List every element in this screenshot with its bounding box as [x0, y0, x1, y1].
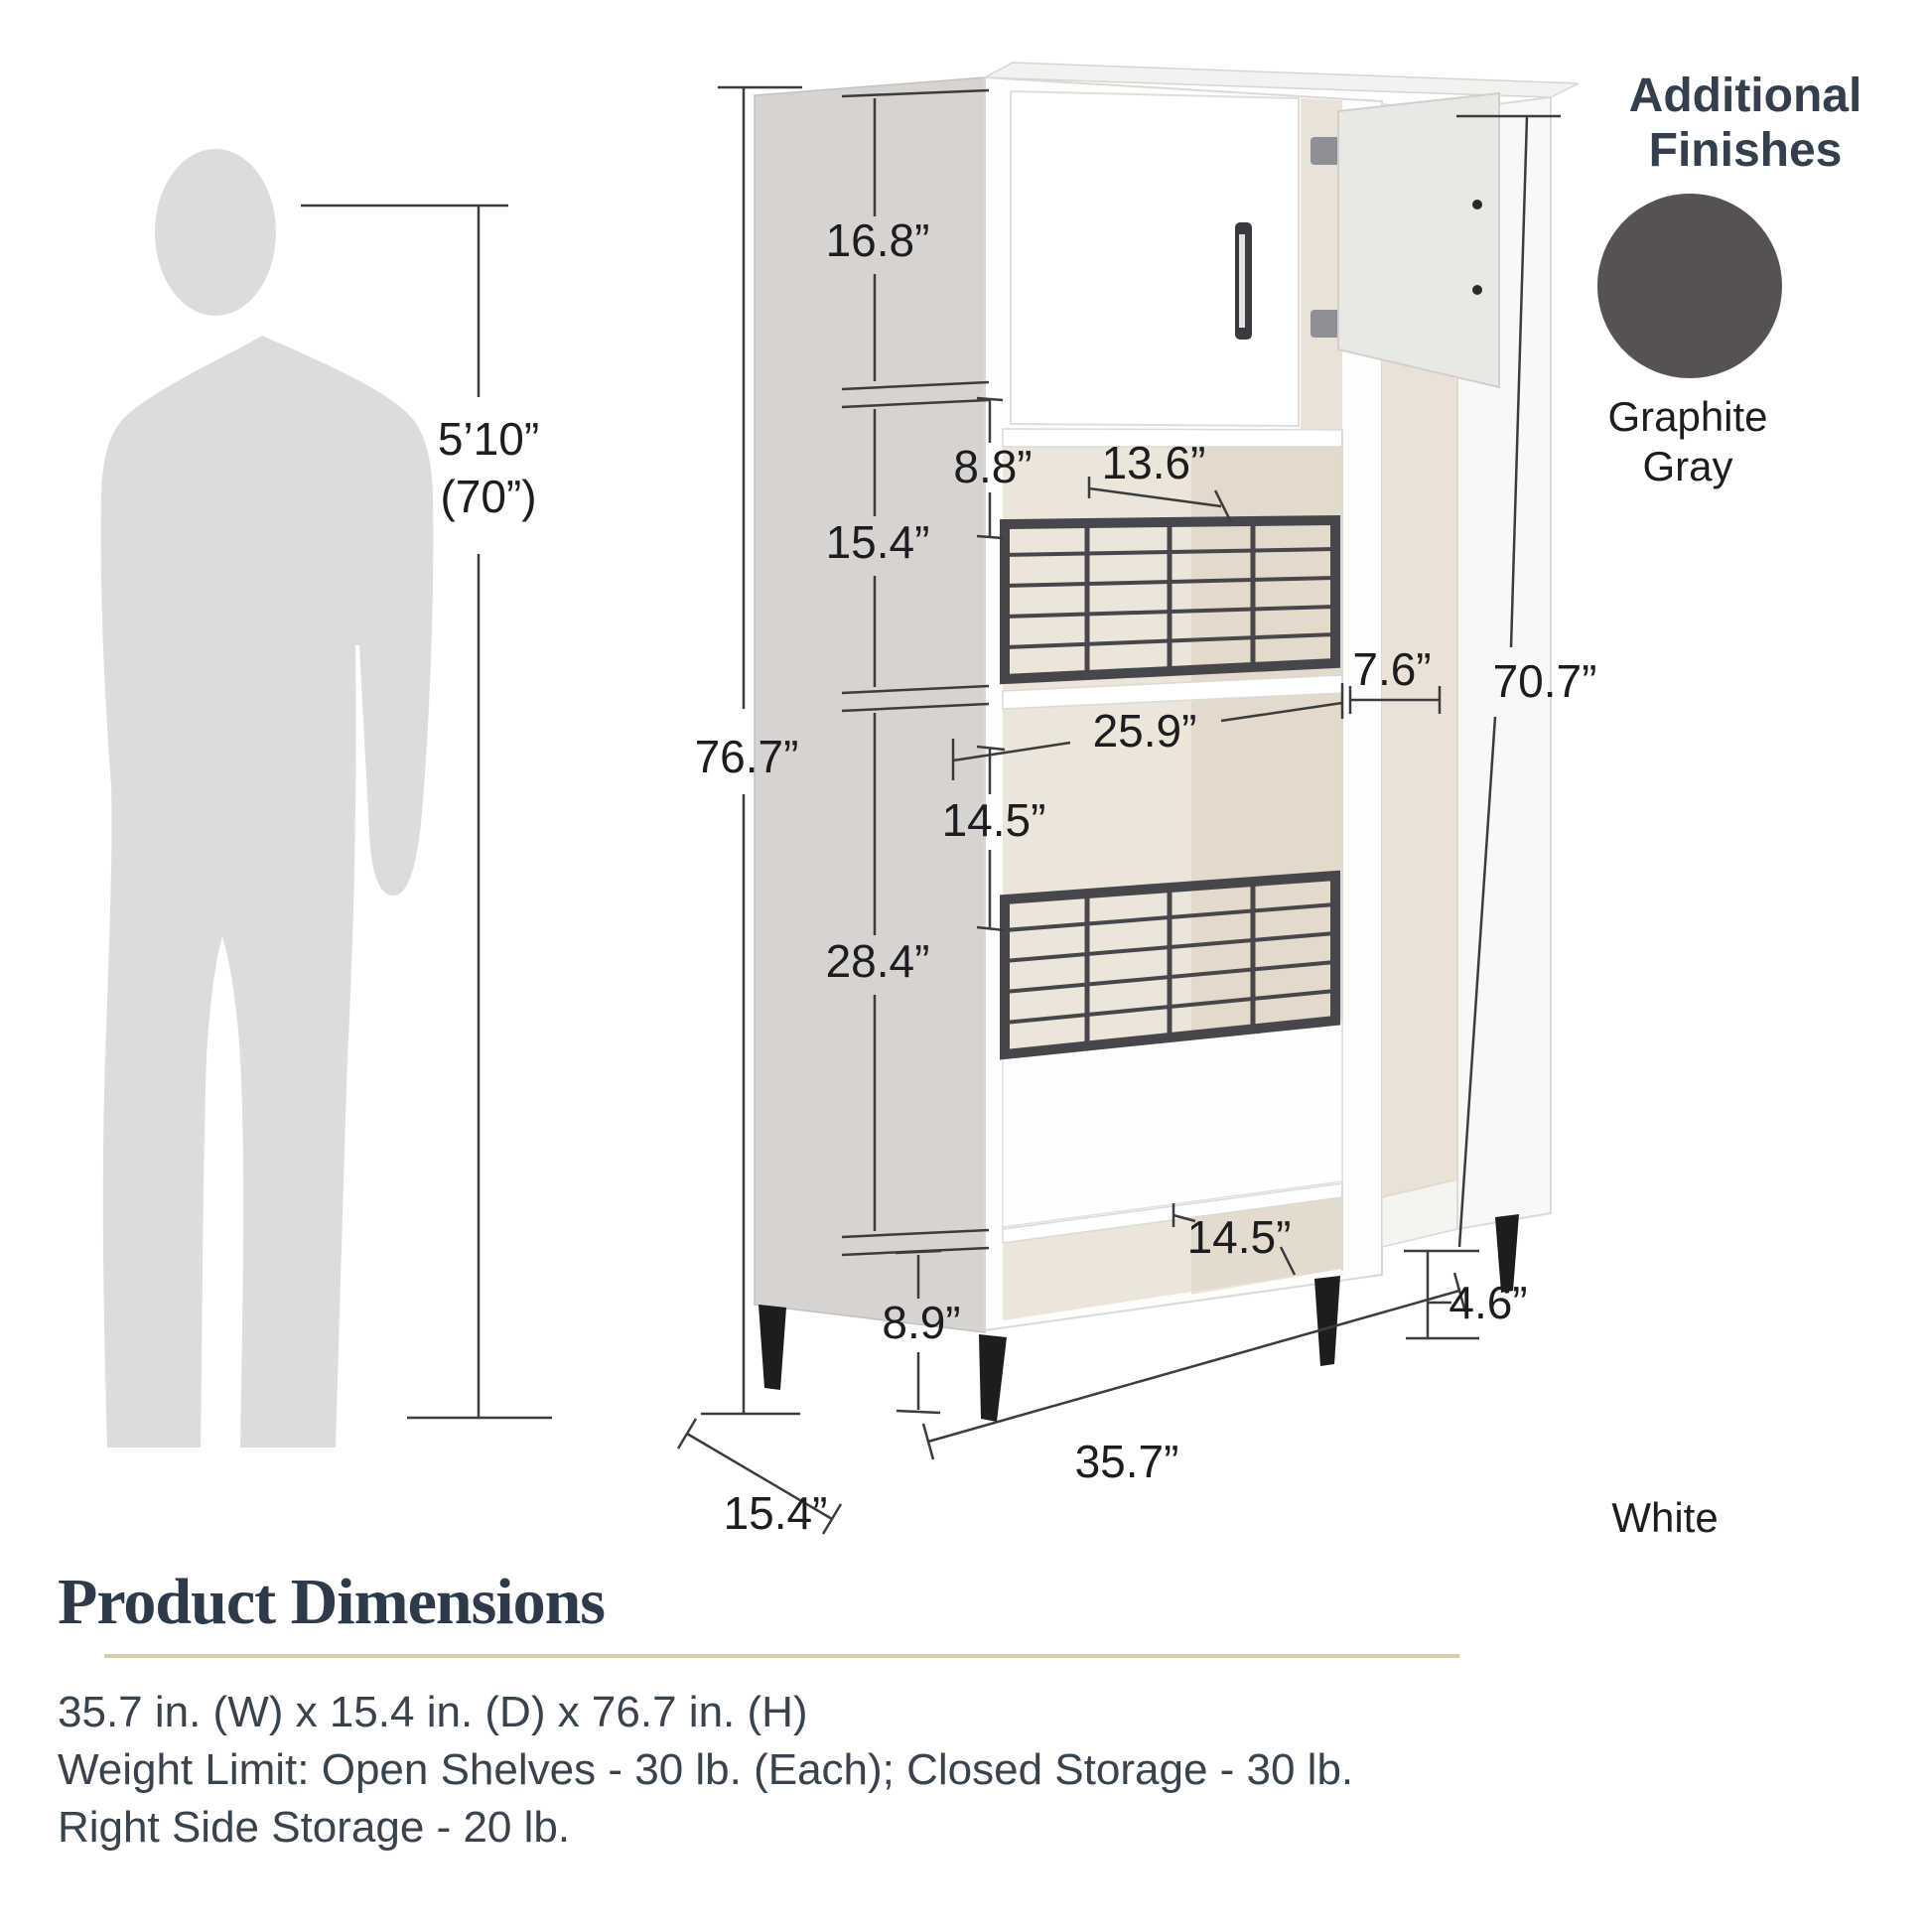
label-shelf2-height: 15.4” — [826, 516, 930, 568]
person-silhouette — [101, 149, 434, 1448]
label-mid-opening-height: 14.5” — [942, 794, 1046, 846]
label-side-height: 70.7” — [1493, 655, 1597, 707]
footer-size-line: 35.7 in. (W) x 15.4 in. (D) x 76.7 in. (… — [58, 1684, 1547, 1741]
footer-specs: Product Dimensions 35.7 in. (W) x 15.4 i… — [58, 1565, 1547, 1857]
current-finish-label: White — [1611, 1494, 1718, 1541]
label-side-width: 7.6” — [1352, 643, 1431, 695]
shelf-pin-hole — [1472, 200, 1482, 209]
top-door-open — [1311, 93, 1499, 387]
finish-swatch-name-line1: Graphite — [1607, 393, 1767, 440]
label-basket-offset: 8.8” — [953, 441, 1032, 492]
leg-back-left — [759, 1305, 786, 1390]
label-bottom-shelf-height: 8.9” — [882, 1297, 960, 1348]
label-total-height: 76.7” — [695, 731, 799, 782]
label-leg-height: 4.6” — [1449, 1277, 1527, 1328]
label-total-depth: 15.4” — [724, 1487, 828, 1539]
label-person-height-in: (70”) — [440, 471, 536, 522]
finish-swatch-graphite-gray — [1597, 194, 1782, 378]
top-door-closed — [1011, 91, 1299, 426]
label-basket-width: 13.6” — [1102, 437, 1206, 488]
label-opening-width: 25.9” — [1093, 705, 1197, 757]
label-top-cabinet-height: 16.8” — [826, 214, 930, 266]
leg-front-right — [1314, 1276, 1340, 1366]
finishes-title-line1: Additional — [1629, 69, 1863, 122]
footer-divider — [104, 1654, 1459, 1658]
label-person-height-ft: 5’10” — [438, 413, 539, 465]
product-dimensions-sheet: 5’10” (70”) 16.8” 15.4” 8.8” 13.6” 76.7”… — [0, 0, 1932, 1932]
additional-finishes-block: Additional Finishes Graphite Gray — [1597, 69, 1862, 489]
footer-title: Product Dimensions — [58, 1565, 1547, 1640]
label-lower-height: 28.4” — [826, 935, 930, 987]
label-total-width: 35.7” — [1075, 1436, 1179, 1487]
door-hinge-bottom — [1311, 310, 1340, 338]
label-bottom-opening-width: 14.5” — [1187, 1211, 1292, 1263]
footer-weight-line: Weight Limit: Open Shelves - 30 lb. (Eac… — [58, 1741, 1547, 1799]
footer-side-line: Right Side Storage - 20 lb. — [58, 1799, 1547, 1857]
finish-swatch-name-line2: Gray — [1642, 443, 1732, 489]
door-hinge-top — [1311, 137, 1340, 165]
leg-front-left — [979, 1334, 1007, 1422]
shelf-pin-hole — [1472, 285, 1482, 295]
finishes-title-line2: Finishes — [1649, 124, 1843, 177]
